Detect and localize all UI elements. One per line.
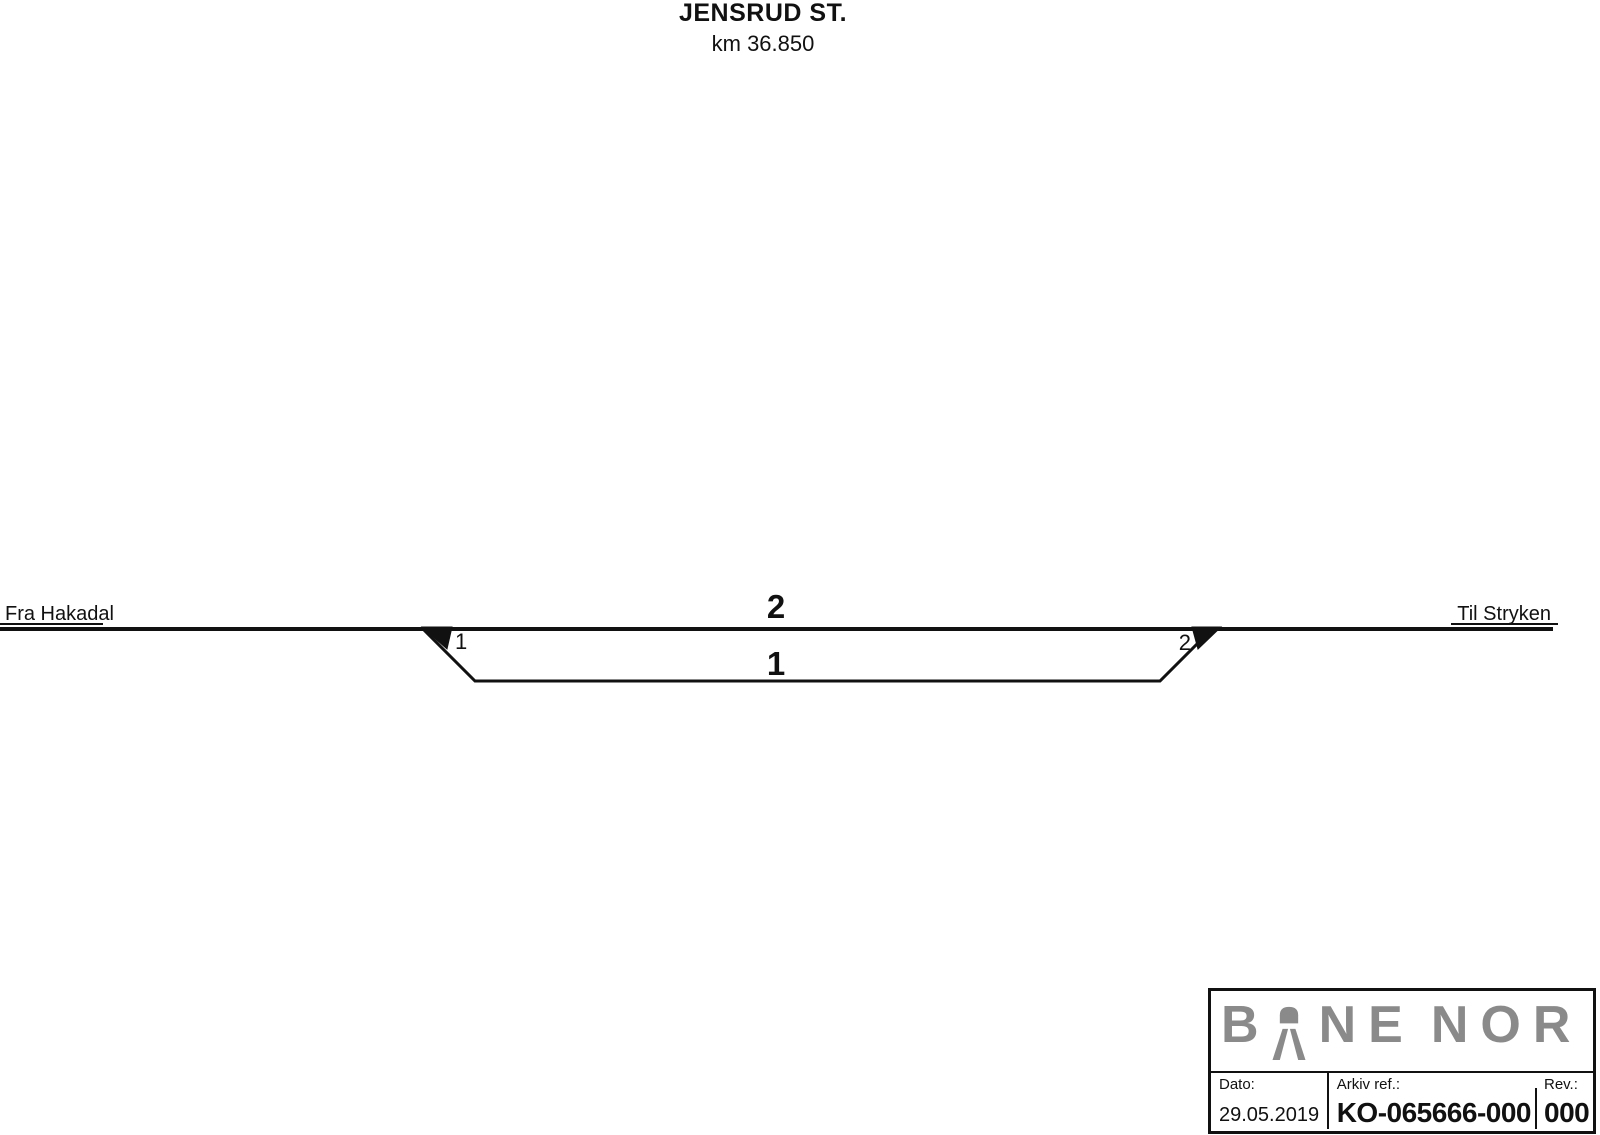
logo-letter-n1: N: [1319, 1003, 1357, 1047]
rev-cell: Rev.: 000: [1537, 1073, 1593, 1129]
to-station-label: Til Stryken: [1457, 603, 1551, 625]
title-block-info-row: Dato: 29.05.2019 Arkiv ref.: KO-065666-0…: [1211, 1073, 1593, 1129]
track-schematic: Fra Hakadal Til Stryken 2 1 1 2: [0, 0, 1600, 1135]
logo-letter-r: R: [1533, 1003, 1571, 1047]
archive-ref-cell: Arkiv ref.: KO-065666-000: [1329, 1073, 1537, 1129]
left-switch-number: 1: [455, 629, 467, 654]
title-block: B N E N O R Dato: 29.05.2019 Arkiv ref.:…: [1208, 988, 1596, 1134]
rev-label: Rev.:: [1544, 1077, 1587, 1092]
bane-nor-tunnel-arch-icon: [1271, 1005, 1307, 1060]
turnout-left-icon: [422, 627, 452, 649]
date-cell: Dato: 29.05.2019: [1211, 1073, 1329, 1129]
bane-nor-logo: B N E N O R: [1211, 991, 1593, 1073]
rev-value: 000: [1544, 1100, 1587, 1125]
right-switch-number: 2: [1179, 630, 1191, 655]
rev-cell-divider: [1535, 1088, 1537, 1129]
date-value: 29.05.2019: [1219, 1105, 1321, 1125]
main-track-number: 2: [767, 588, 785, 625]
loop-track-line: [423, 629, 1212, 681]
logo-letter-n2: N: [1431, 1003, 1469, 1047]
date-label: Dato:: [1219, 1077, 1321, 1092]
logo-letter-b: B: [1221, 1003, 1259, 1047]
logo-letter-o: O: [1480, 1003, 1520, 1047]
logo-letter-e: E: [1368, 1003, 1403, 1047]
archive-ref-value: KO-065666-000: [1337, 1100, 1531, 1125]
loop-track-number: 1: [767, 645, 785, 682]
archive-ref-label: Arkiv ref.:: [1337, 1077, 1531, 1092]
from-station-label: Fra Hakadal: [5, 603, 114, 625]
